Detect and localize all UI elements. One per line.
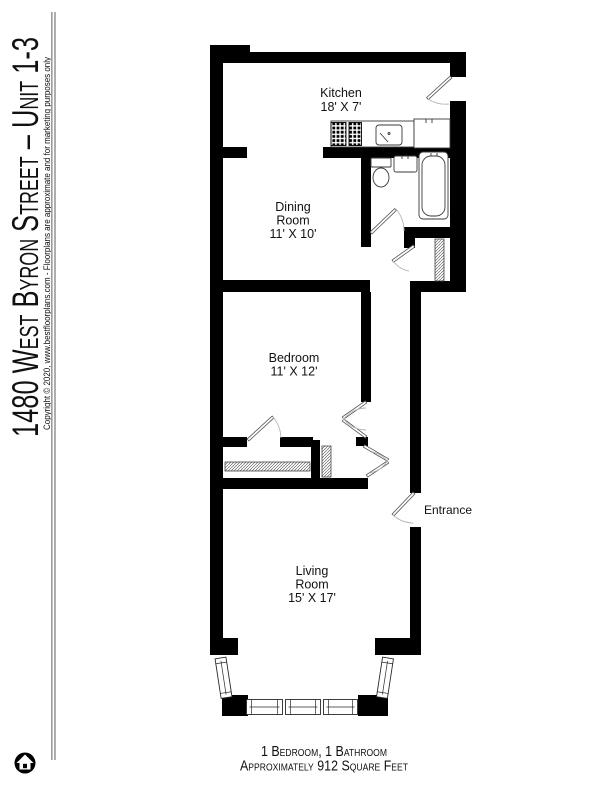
kitchen-corner-door xyxy=(427,76,452,104)
house-in-circle-icon xyxy=(15,753,36,774)
hall-closet-rod xyxy=(435,239,444,281)
footer-area-summary: Approximately 912 Square Feet xyxy=(240,759,408,775)
wall-segment xyxy=(223,147,247,158)
wall-segment xyxy=(404,227,453,238)
wall-segment xyxy=(450,101,466,292)
kitchen-dims: 18' X 7' xyxy=(321,100,362,114)
small-closet-rod xyxy=(322,446,331,477)
copyright-note: Copyright © 2020, www.bestfloorplans.com… xyxy=(42,57,52,430)
entry-closet-double-door xyxy=(363,445,388,477)
living-dims: 15' X 17' xyxy=(288,591,336,605)
dining-label-line1: Dining xyxy=(275,200,310,214)
dining-label-line2: Room xyxy=(276,214,309,228)
sidebar: 1480 West Byron Street – Unit 1-3 Copyri… xyxy=(5,12,56,774)
bedroom-closet-door xyxy=(247,416,281,441)
bedroom-label: Bedroom xyxy=(269,351,320,365)
wall-segment xyxy=(223,478,368,489)
page-title: 1480 West Byron Street – Unit 1-3 xyxy=(5,37,46,437)
wall-segment xyxy=(361,157,371,247)
bedroom-dims: 11' X 12' xyxy=(271,365,318,379)
bathroom-door xyxy=(370,209,404,234)
toilet xyxy=(371,158,391,187)
refrigerator xyxy=(414,119,450,148)
bay-window-bottom-1 xyxy=(247,700,283,715)
divider-rule-inner xyxy=(54,12,56,760)
entrance-label: Entrance xyxy=(424,503,472,517)
bay-window-bottom-2 xyxy=(286,700,321,715)
wall-segment xyxy=(450,52,466,77)
wall-segment xyxy=(210,52,466,63)
kitchen-sink xyxy=(376,125,402,145)
living-label-line2: Room xyxy=(295,578,328,592)
wall-segment xyxy=(410,527,421,655)
wall-segment xyxy=(223,437,247,447)
footer: 1 Bedroom, 1 Bathroom Approximately 912 … xyxy=(240,744,408,775)
bay-window-right-angled xyxy=(377,657,394,698)
bathroom-fixtures xyxy=(371,152,448,219)
kitchen-fixtures xyxy=(331,119,450,148)
wall-segment xyxy=(356,437,368,446)
bathroom-sink xyxy=(394,156,417,172)
bay-window-left-angled xyxy=(215,657,232,698)
bedroom-closet-rod xyxy=(225,462,310,471)
living-label-line1: Living xyxy=(296,564,329,578)
wall-segment xyxy=(410,288,421,493)
kitchen-label: Kitchen xyxy=(320,86,362,100)
entrance-door xyxy=(392,492,415,523)
wall-segment xyxy=(375,638,410,655)
wall-segment xyxy=(223,638,238,655)
bathtub xyxy=(419,152,448,219)
bedroom-double-door xyxy=(342,401,367,438)
dining-dims: 11' X 10' xyxy=(270,227,317,241)
hall-closet-door xyxy=(392,245,415,271)
wall-segment xyxy=(222,695,248,716)
bay-window-bottom-3 xyxy=(324,700,358,715)
wall-segment xyxy=(223,280,370,292)
floorplan-page: 1480 West Byron Street – Unit 1-3 Copyri… xyxy=(0,0,612,792)
divider-rule-outer xyxy=(51,12,53,760)
wall-segment xyxy=(361,292,371,402)
stove xyxy=(331,123,362,146)
wall-segment xyxy=(210,52,223,655)
wall-segment xyxy=(280,437,313,447)
